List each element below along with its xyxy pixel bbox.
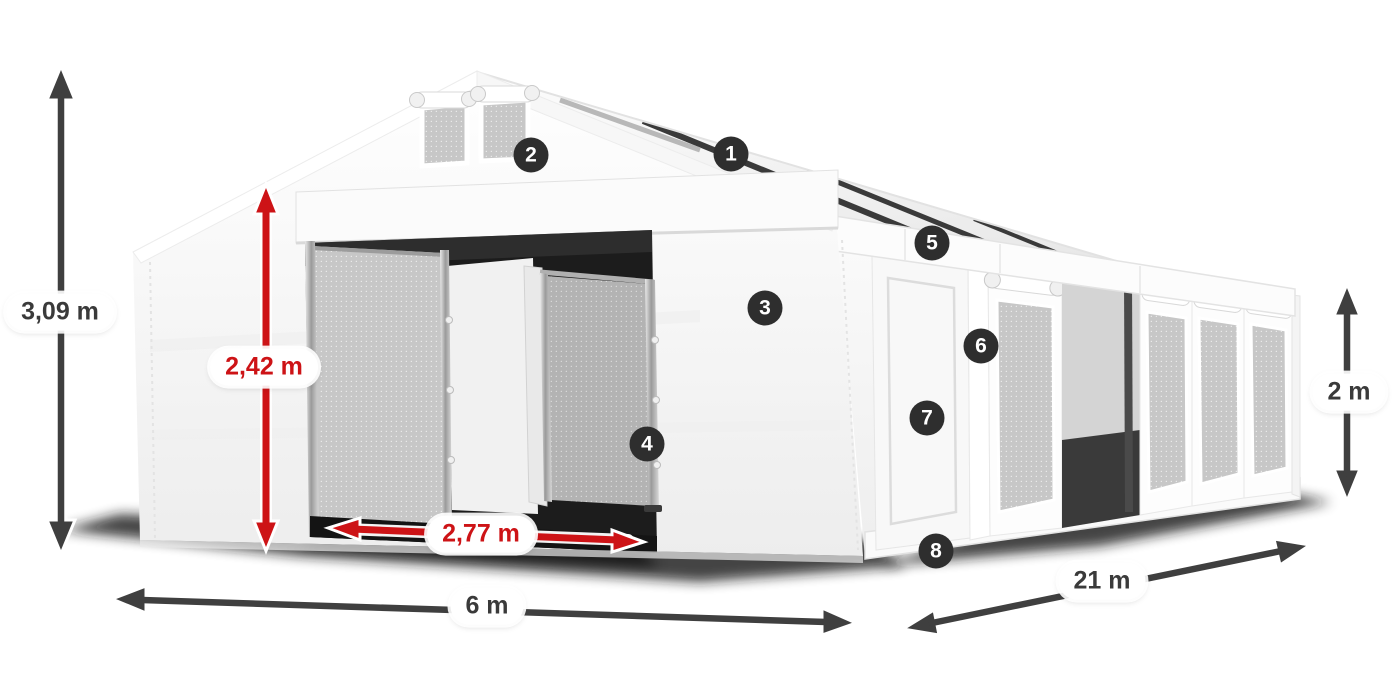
side-window-1	[983, 253, 1066, 536]
side-window-2	[1140, 276, 1192, 515]
feature-badge-7: 7	[910, 401, 945, 436]
side-window-3	[1192, 284, 1244, 506]
feature-badge-8: 8	[919, 534, 954, 569]
wall-strap	[968, 250, 990, 540]
side-window-4	[1244, 292, 1293, 498]
dimension-label-width: 6 m	[450, 588, 523, 625]
feature-badge-2: 2	[514, 138, 549, 173]
feature-badge-1: 1	[714, 137, 749, 172]
feature-badge-5: 5	[915, 226, 950, 261]
interior-leg-pole	[1124, 278, 1133, 512]
feature-badge-3: 3	[748, 291, 783, 326]
feature-badge-6: 6	[964, 329, 999, 364]
dimension-label-side-height: 2 m	[1312, 374, 1385, 411]
tent-dimension-diagram: 3,09 m 2,42 m 2,77 m 6 m 21 m 2 m 1 2 3 …	[0, 0, 1400, 700]
feature-badge-4: 4	[630, 427, 665, 462]
front-door-opening	[305, 230, 662, 553]
side-wall	[835, 216, 1300, 559]
dimension-label-total-height: 3,09 m	[6, 294, 114, 331]
back-corner-post	[1292, 295, 1300, 497]
tent-illustration	[0, 0, 1400, 700]
side-entrance-opening	[1058, 262, 1146, 528]
dimension-label-inner-door-height: 2,42 m	[210, 349, 318, 386]
vent-window-1	[410, 92, 477, 167]
mesh-door-inner	[540, 272, 662, 512]
dimension-label-door-width: 2,77 m	[427, 516, 535, 553]
mesh-door-left	[305, 241, 455, 537]
dimension-label-length: 21 m	[1059, 563, 1146, 600]
